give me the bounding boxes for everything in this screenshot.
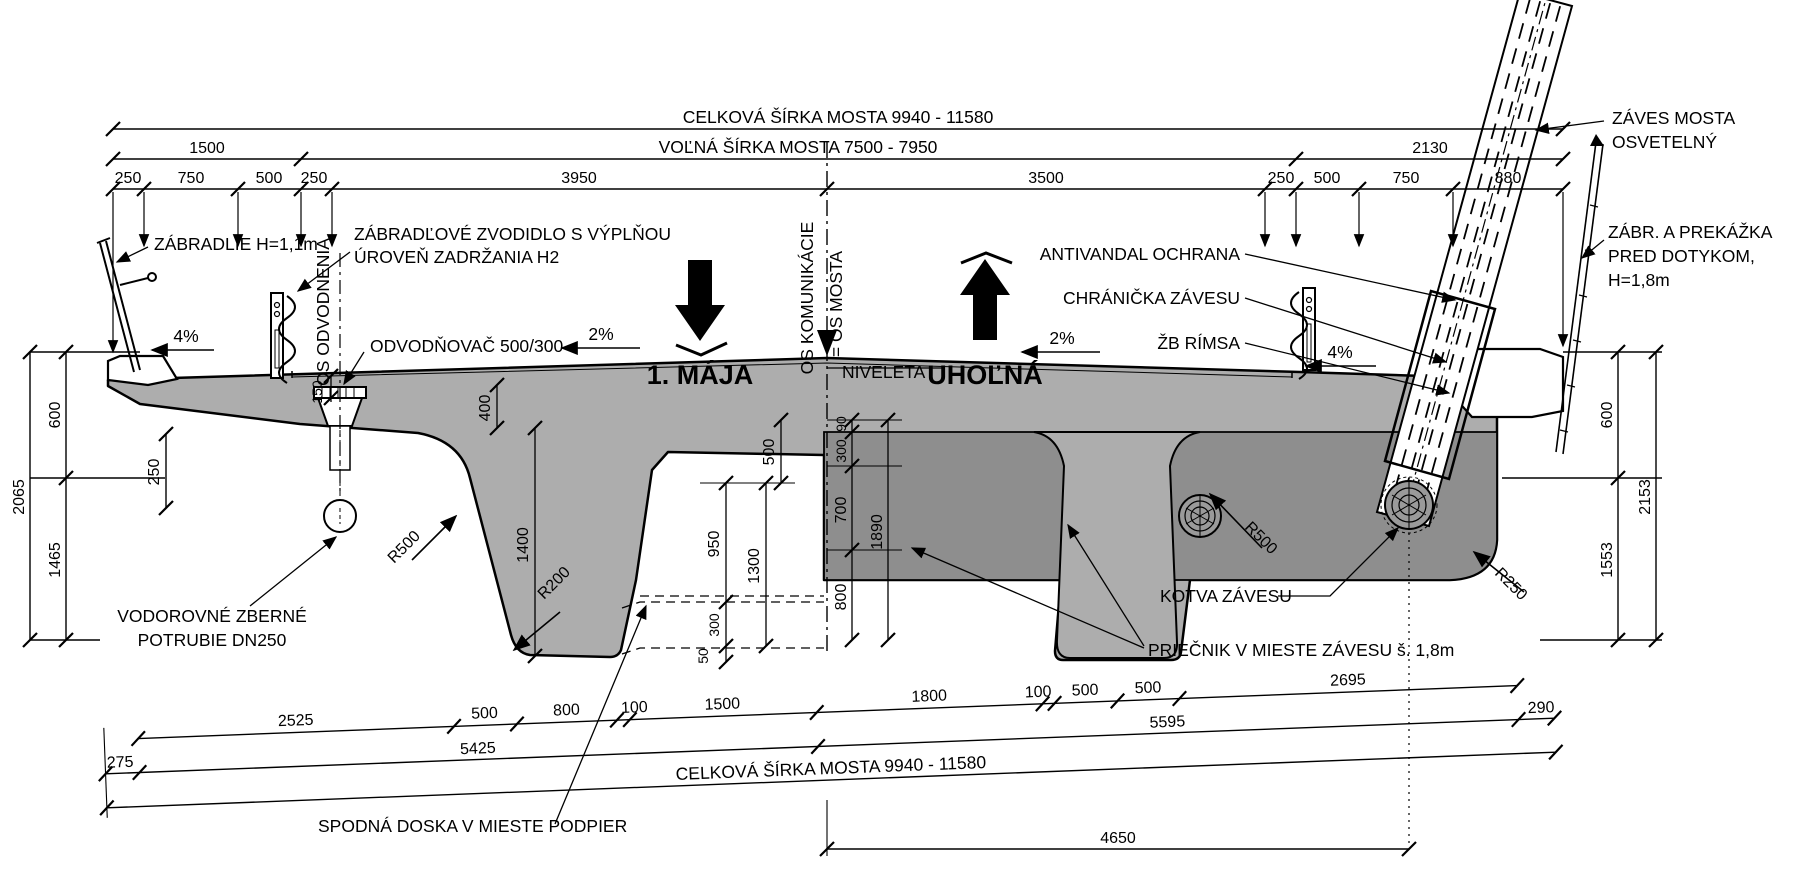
dim: 750 xyxy=(1393,170,1420,187)
label-odvodnovac: ODVODŇOVAČ 500/300 xyxy=(370,335,563,356)
dim-300r: 300 xyxy=(833,439,849,463)
label-kotva: KOTVA ZÁVESU xyxy=(1160,586,1292,606)
dim: 250 xyxy=(115,170,142,187)
dim: 500 xyxy=(471,705,498,723)
label-zabradlie: ZÁBRADLIE H=1,1m xyxy=(154,234,318,254)
left-curb-block xyxy=(108,356,177,385)
dim-1553: 1553 xyxy=(1599,542,1616,578)
cable-sleeve-section-anchor xyxy=(1179,495,1221,537)
top-dimension-texts: CELKOVÁ ŠÍRKA MOSTA 9940 - 11580 1500 VO… xyxy=(115,106,1522,187)
dim-1465: 1465 xyxy=(47,542,64,578)
dim-2153: 2153 xyxy=(1637,479,1654,515)
dim-290: 290 xyxy=(1527,699,1554,717)
dim-400: 400 xyxy=(477,395,494,422)
r500-left: R500 xyxy=(385,528,424,567)
dim: 100 xyxy=(1024,683,1051,701)
dim: 500 xyxy=(1134,679,1161,697)
dim: 250 xyxy=(301,170,328,187)
dim-1400: 1400 xyxy=(515,527,532,563)
bottom-dimension-texts: 2525 500 800 100 1500 1800 100 500 500 2… xyxy=(105,664,1556,806)
label-zvodidlo-2: ÚROVEŇ ZADRŽANIA H2 xyxy=(354,246,559,267)
label-zaves-2: OSVETELNÝ xyxy=(1612,132,1717,152)
left-dimension-texts: 600 1465 2065 250 xyxy=(11,402,163,578)
dim-275: 275 xyxy=(106,754,133,772)
bottom-dimension-rows: 2525 500 800 100 1500 1800 100 500 500 2… xyxy=(97,664,1564,818)
label-priecnik: PRIEČNIK V MIESTE ZÁVESU š. 1,8m xyxy=(1148,639,1454,660)
slope-4-right: 4% xyxy=(1327,342,1352,362)
label-potrubie-1: VODOROVNÉ ZBERNÉ xyxy=(117,606,307,626)
dim: 500 xyxy=(1071,682,1098,700)
label-zabrana-2: PRED DOTYKOM, xyxy=(1608,246,1755,266)
label-antivandal: ANTIVANDAL OCHRANA xyxy=(1040,244,1241,264)
dim: 1500 xyxy=(704,695,740,713)
dim-2065: 2065 xyxy=(11,479,28,515)
dim: 2695 xyxy=(1330,671,1366,689)
slope-2-left: 2% xyxy=(588,324,613,344)
anchor-span-dimension: 4650 xyxy=(820,800,1416,856)
right-dimension-texts: 600 1553 2153 xyxy=(1599,402,1654,578)
label-chranicka: CHRÁNIČKA ZÁVESU xyxy=(1063,287,1240,308)
dim: 500 xyxy=(256,170,283,187)
dim: 250 xyxy=(1268,170,1295,187)
slope-4-left: 4% xyxy=(173,326,198,346)
label-potrubie-2: POTRUBIE DN250 xyxy=(138,630,287,650)
overall-width-bottom: CELKOVÁ ŠÍRKA MOSTA 9940 - 11580 xyxy=(675,751,986,784)
dim-1500: 1500 xyxy=(189,140,225,157)
dim: 500 xyxy=(1314,170,1341,187)
dim-90: 90 xyxy=(833,416,849,432)
overall-width-top: CELKOVÁ ŠÍRKA MOSTA 9940 - 11580 xyxy=(683,106,994,127)
dim: 750 xyxy=(178,170,205,187)
street-direction-right xyxy=(960,253,1012,340)
dim: 100 xyxy=(621,699,648,717)
dim-500: 500 xyxy=(761,439,778,466)
dim-2130: 2130 xyxy=(1412,140,1448,157)
label-street-maja: 1. MÁJA xyxy=(647,359,754,390)
dim-300: 300 xyxy=(706,613,722,637)
dim-250-tip: 250 xyxy=(146,459,163,486)
label-spodna-doska: SPODNÁ DOSKA V MIESTE PODPIER xyxy=(318,816,627,836)
dim-1890: 1890 xyxy=(869,514,886,550)
drawing-canvas: CELKOVÁ ŠÍRKA MOSTA 9940 - 11580 1500 VO… xyxy=(0,0,1800,870)
dim: 1800 xyxy=(911,687,947,705)
dim: 2525 xyxy=(278,712,314,730)
dim-700: 700 xyxy=(833,497,850,524)
dim: 800 xyxy=(553,702,580,720)
left-guardrail-post xyxy=(271,293,295,383)
dim-50: 50 xyxy=(695,648,711,664)
label-os-komunikacie: OS KOMUNIKÁCIE xyxy=(797,222,817,375)
arrow-down-icon xyxy=(675,260,725,341)
dim-600-right: 600 xyxy=(1599,402,1616,429)
dim-1300: 1300 xyxy=(746,548,763,584)
dim: 3500 xyxy=(1028,170,1064,187)
label-niveleta: NIVELETA xyxy=(842,362,926,382)
dim-800: 800 xyxy=(833,584,850,611)
arrow-up-icon xyxy=(960,259,1010,340)
label-zb-rimsa: ŽB RÍMSA xyxy=(1157,333,1240,353)
label-os-odvodnenia: OS ODVODNENIA xyxy=(313,238,333,386)
label-street-uholna: UHOĽNÁ xyxy=(927,359,1043,390)
dim-5595: 5595 xyxy=(1149,713,1185,731)
dim: 880 xyxy=(1495,170,1522,187)
label-zvodidlo-1: ZÁBRADĽOVÉ ZVODIDLO S VÝPLŇOU xyxy=(354,224,671,244)
label-zabrana-1: ZÁBR. A PREKÁŽKA xyxy=(1608,222,1773,242)
dim-4650: 4650 xyxy=(1100,830,1136,847)
label-os-mosta: = OS MOSTA xyxy=(826,251,846,357)
slope-2-right: 2% xyxy=(1049,328,1074,348)
dim-950: 950 xyxy=(706,531,723,558)
bridge-cross-section-drawing: CELKOVÁ ŠÍRKA MOSTA 9940 - 11580 1500 VO… xyxy=(0,0,1800,870)
r250: R250 xyxy=(1491,565,1530,604)
free-width: VOĽNÁ ŠÍRKA MOSTA 7500 - 7950 xyxy=(659,136,938,157)
street-direction-left xyxy=(675,260,727,355)
label-zaves-1: ZÁVES MOSTA xyxy=(1612,108,1735,128)
dim: 3950 xyxy=(561,170,597,187)
dim-600-left: 600 xyxy=(47,402,64,429)
label-zabrana-3: H=1,8m xyxy=(1608,270,1670,290)
dim-5425: 5425 xyxy=(460,740,496,758)
